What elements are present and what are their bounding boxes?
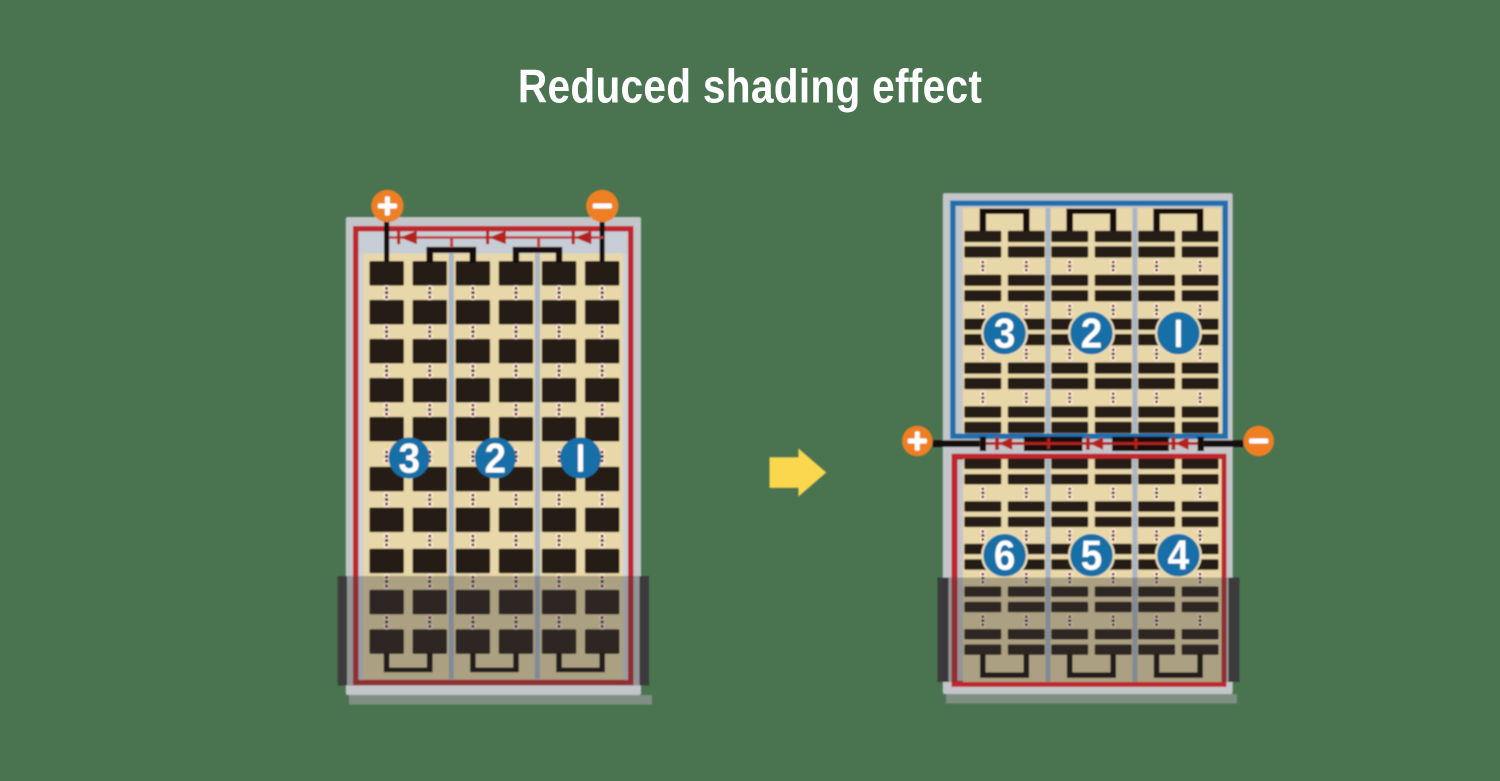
- svg-text:3: 3: [994, 309, 1015, 357]
- svg-text:5: 5: [1081, 531, 1102, 579]
- svg-text:2: 2: [1081, 309, 1102, 357]
- svg-text:6: 6: [994, 531, 1015, 579]
- svg-text:Reduced shading effect: Reduced shading effect: [518, 61, 982, 113]
- svg-text:4: 4: [1168, 531, 1190, 579]
- svg-text:2: 2: [485, 434, 506, 482]
- svg-text:3: 3: [398, 434, 419, 482]
